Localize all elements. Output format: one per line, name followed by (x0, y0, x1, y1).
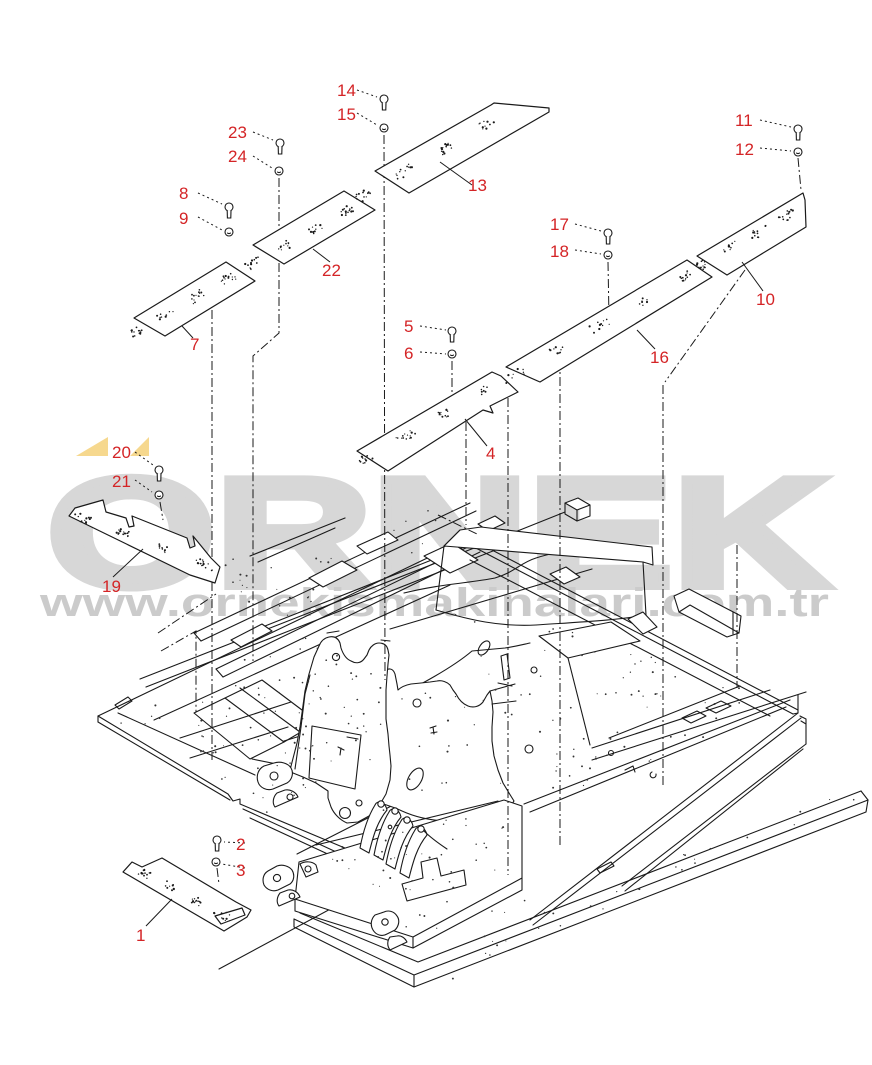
svg-text:2: 2 (236, 835, 245, 854)
svg-text:19: 19 (102, 577, 121, 596)
svg-text:23: 23 (228, 123, 247, 142)
svg-text:22: 22 (322, 261, 341, 280)
svg-text:11: 11 (735, 111, 753, 130)
svg-text:6: 6 (404, 344, 413, 363)
svg-text:13: 13 (468, 176, 487, 195)
svg-text:1: 1 (136, 926, 145, 945)
svg-text:9: 9 (179, 209, 188, 228)
svg-text:20: 20 (112, 443, 131, 462)
svg-text:24: 24 (228, 147, 247, 166)
svg-text:7: 7 (190, 335, 199, 354)
svg-text:15: 15 (337, 105, 356, 124)
svg-text:16: 16 (650, 348, 669, 367)
svg-text:21: 21 (112, 472, 131, 491)
svg-text:18: 18 (550, 242, 569, 261)
svg-text:5: 5 (404, 317, 413, 336)
svg-text:12: 12 (735, 140, 754, 159)
svg-text:3: 3 (236, 861, 245, 880)
svg-text:8: 8 (179, 184, 188, 203)
svg-text:4: 4 (486, 444, 495, 463)
svg-text:10: 10 (756, 290, 775, 309)
svg-text:14: 14 (337, 81, 356, 100)
svg-text:17: 17 (550, 215, 569, 234)
